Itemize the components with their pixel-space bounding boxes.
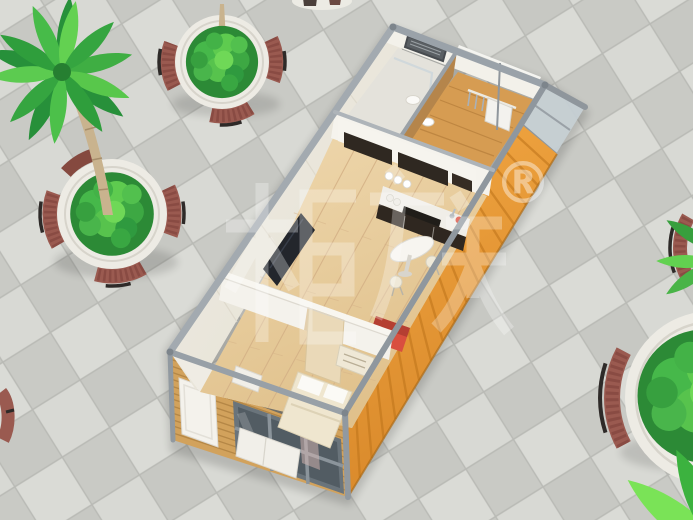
corner-post [170, 352, 173, 440]
bench-backrest [284, 51, 285, 71]
corner-post [345, 413, 348, 497]
planter-bush [186, 26, 258, 98]
render-stage: ® 柜族 [0, 0, 693, 520]
washbasin [406, 96, 420, 105]
scene-render: ® 柜族 [0, 0, 693, 520]
bench-backrest [183, 202, 184, 225]
